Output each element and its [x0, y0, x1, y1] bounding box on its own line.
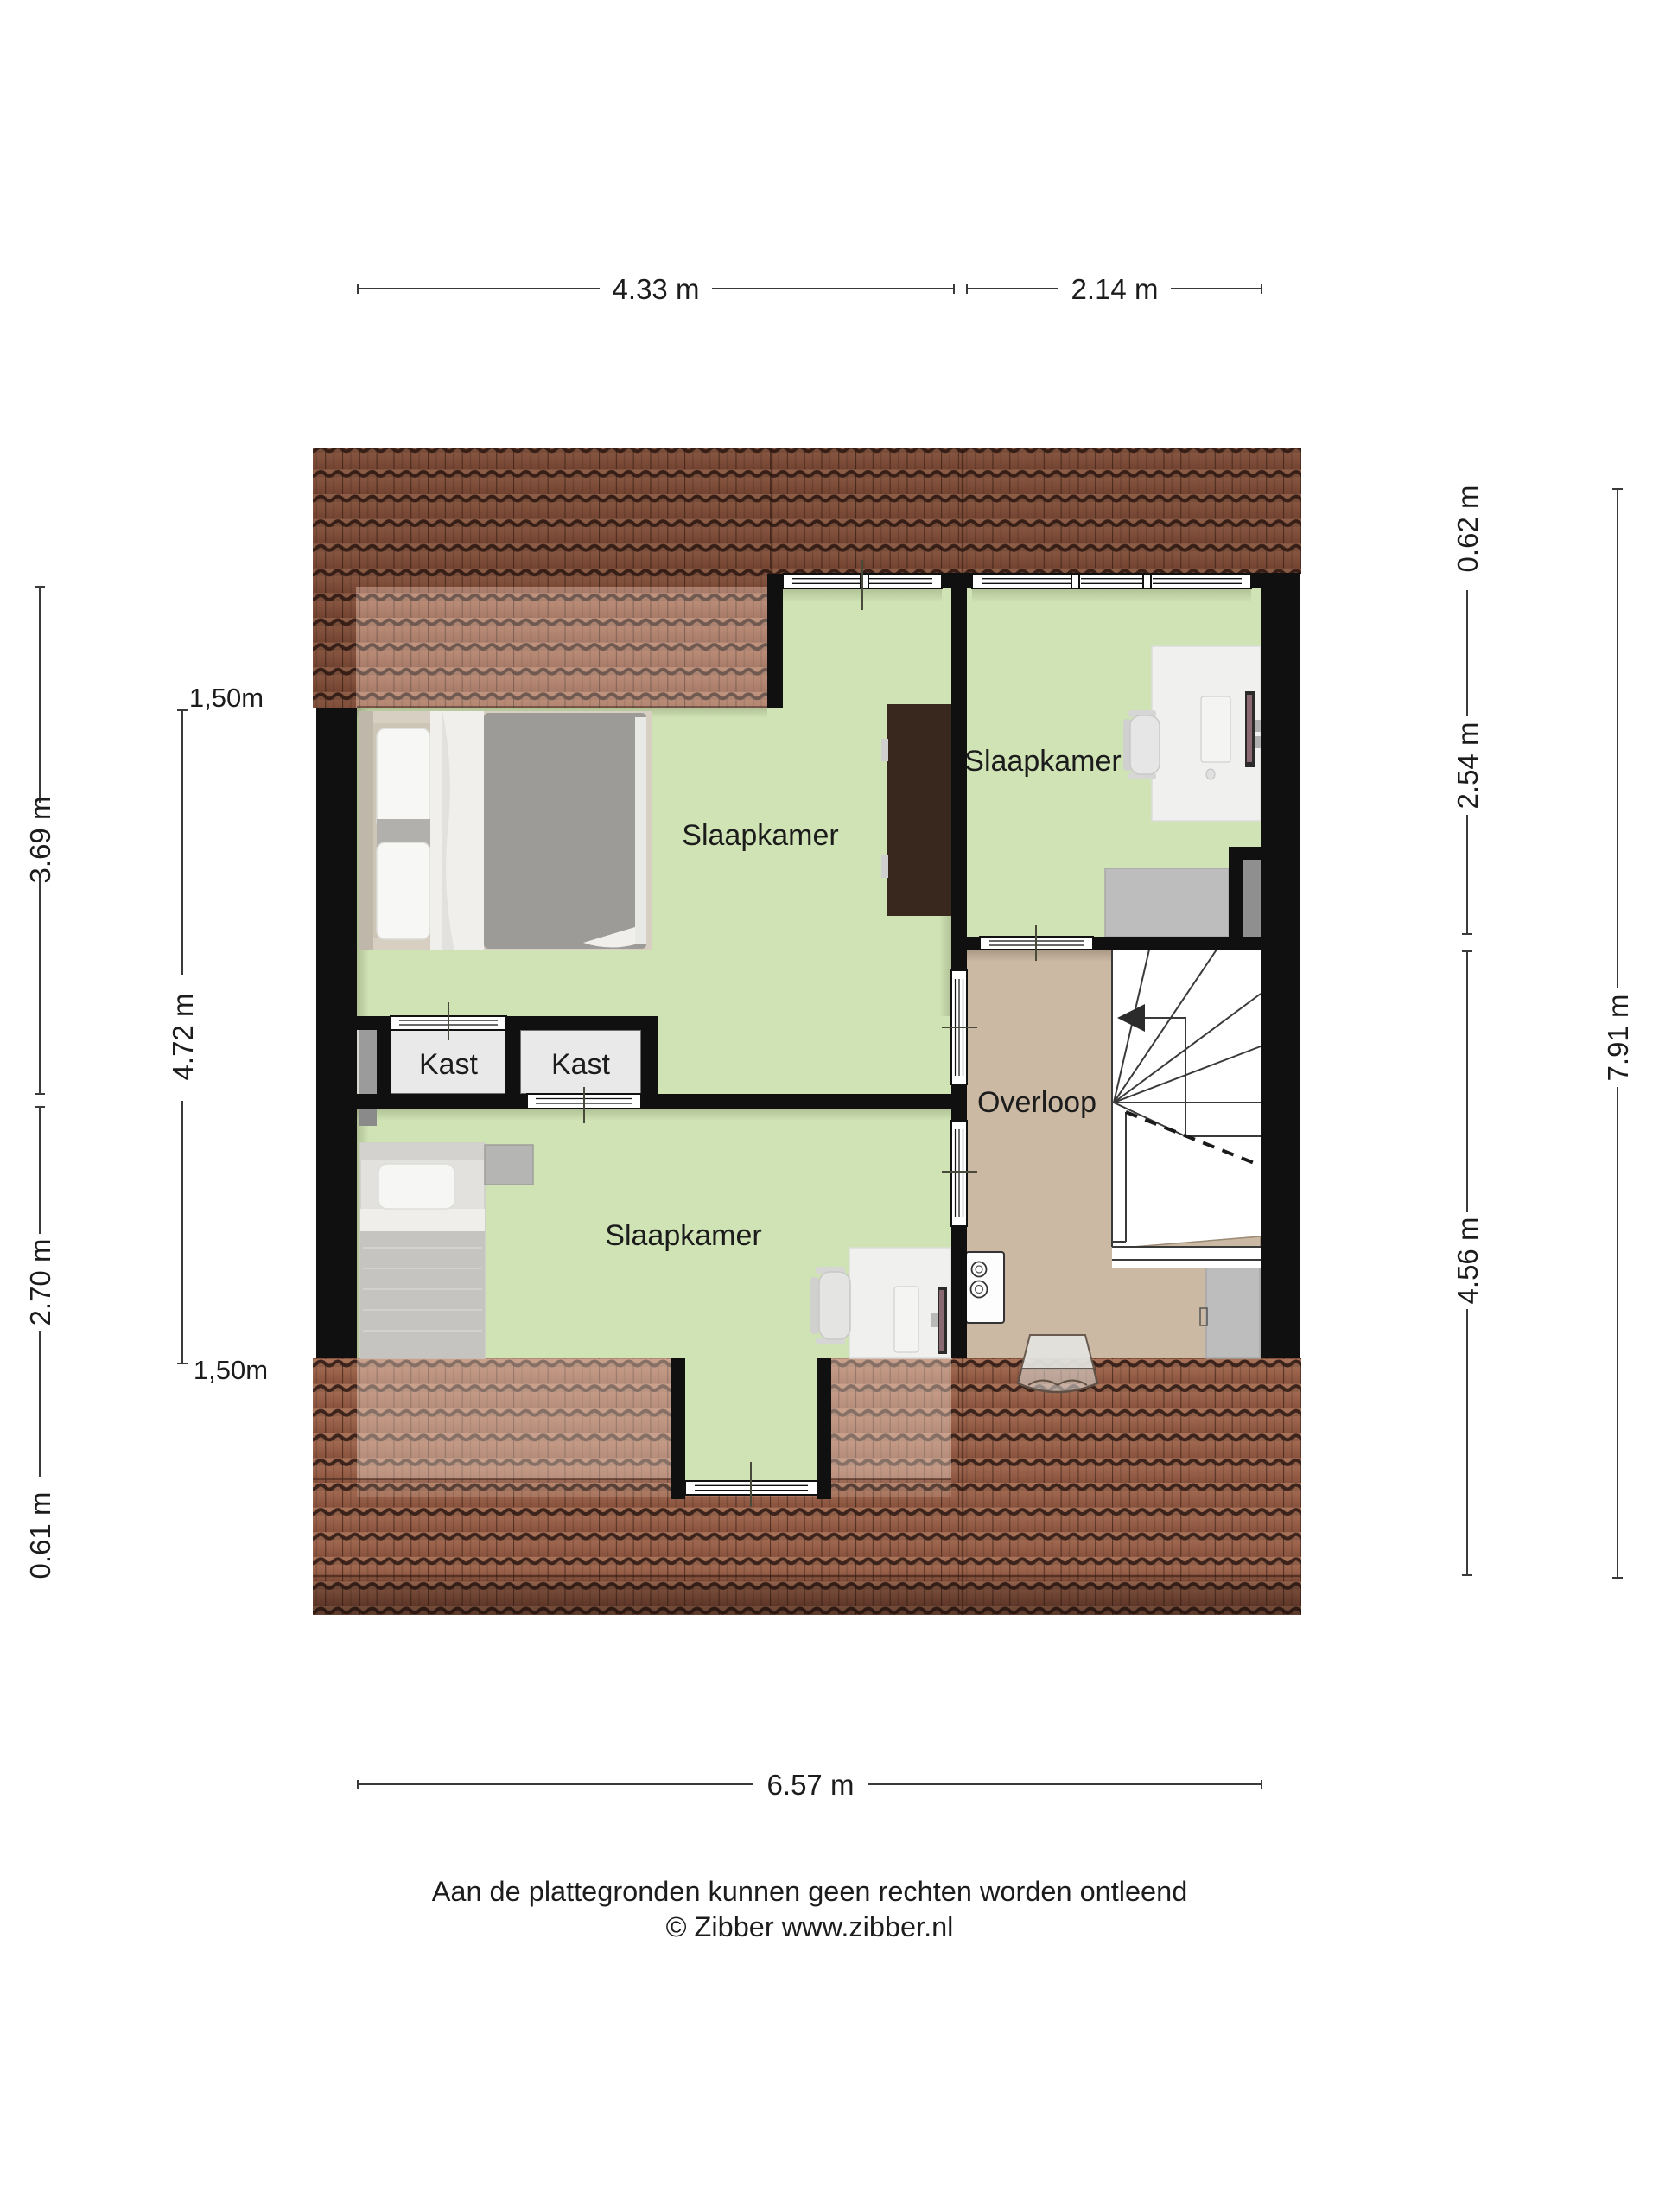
svg-text:Slaapkamer: Slaapkamer — [605, 1219, 761, 1252]
svg-text:Aan de plattegronden kunnen ge: Aan de plattegronden kunnen geen rechten… — [432, 1876, 1188, 1907]
svg-text:Kast: Kast — [551, 1048, 611, 1081]
svg-text:3.69 m: 3.69 m — [24, 797, 56, 884]
svg-text:4.33 m: 4.33 m — [613, 273, 700, 305]
svg-text:Kast: Kast — [419, 1048, 479, 1081]
svg-text:4.56 m: 4.56 m — [1452, 1217, 1484, 1305]
svg-text:2.70 m: 2.70 m — [24, 1239, 56, 1326]
svg-text:4.72 m: 4.72 m — [167, 994, 199, 1081]
svg-text:2.14 m: 2.14 m — [1071, 273, 1159, 305]
svg-text:© Zibber www.zibber.nl: © Zibber www.zibber.nl — [666, 1911, 954, 1942]
svg-text:Overloop: Overloop — [977, 1086, 1096, 1119]
svg-text:1,50m: 1,50m — [189, 683, 264, 713]
svg-text:2.54 m: 2.54 m — [1452, 722, 1484, 810]
svg-text:0.61 m: 0.61 m — [24, 1492, 56, 1580]
svg-text:Slaapkamer: Slaapkamer — [964, 745, 1121, 778]
svg-text:7.91 m: 7.91 m — [1602, 995, 1634, 1082]
svg-text:Slaapkamer: Slaapkamer — [682, 819, 838, 852]
svg-text:0.62 m: 0.62 m — [1452, 486, 1484, 573]
svg-text:6.57 m: 6.57 m — [767, 1769, 855, 1801]
svg-text:1,50m: 1,50m — [194, 1355, 268, 1385]
